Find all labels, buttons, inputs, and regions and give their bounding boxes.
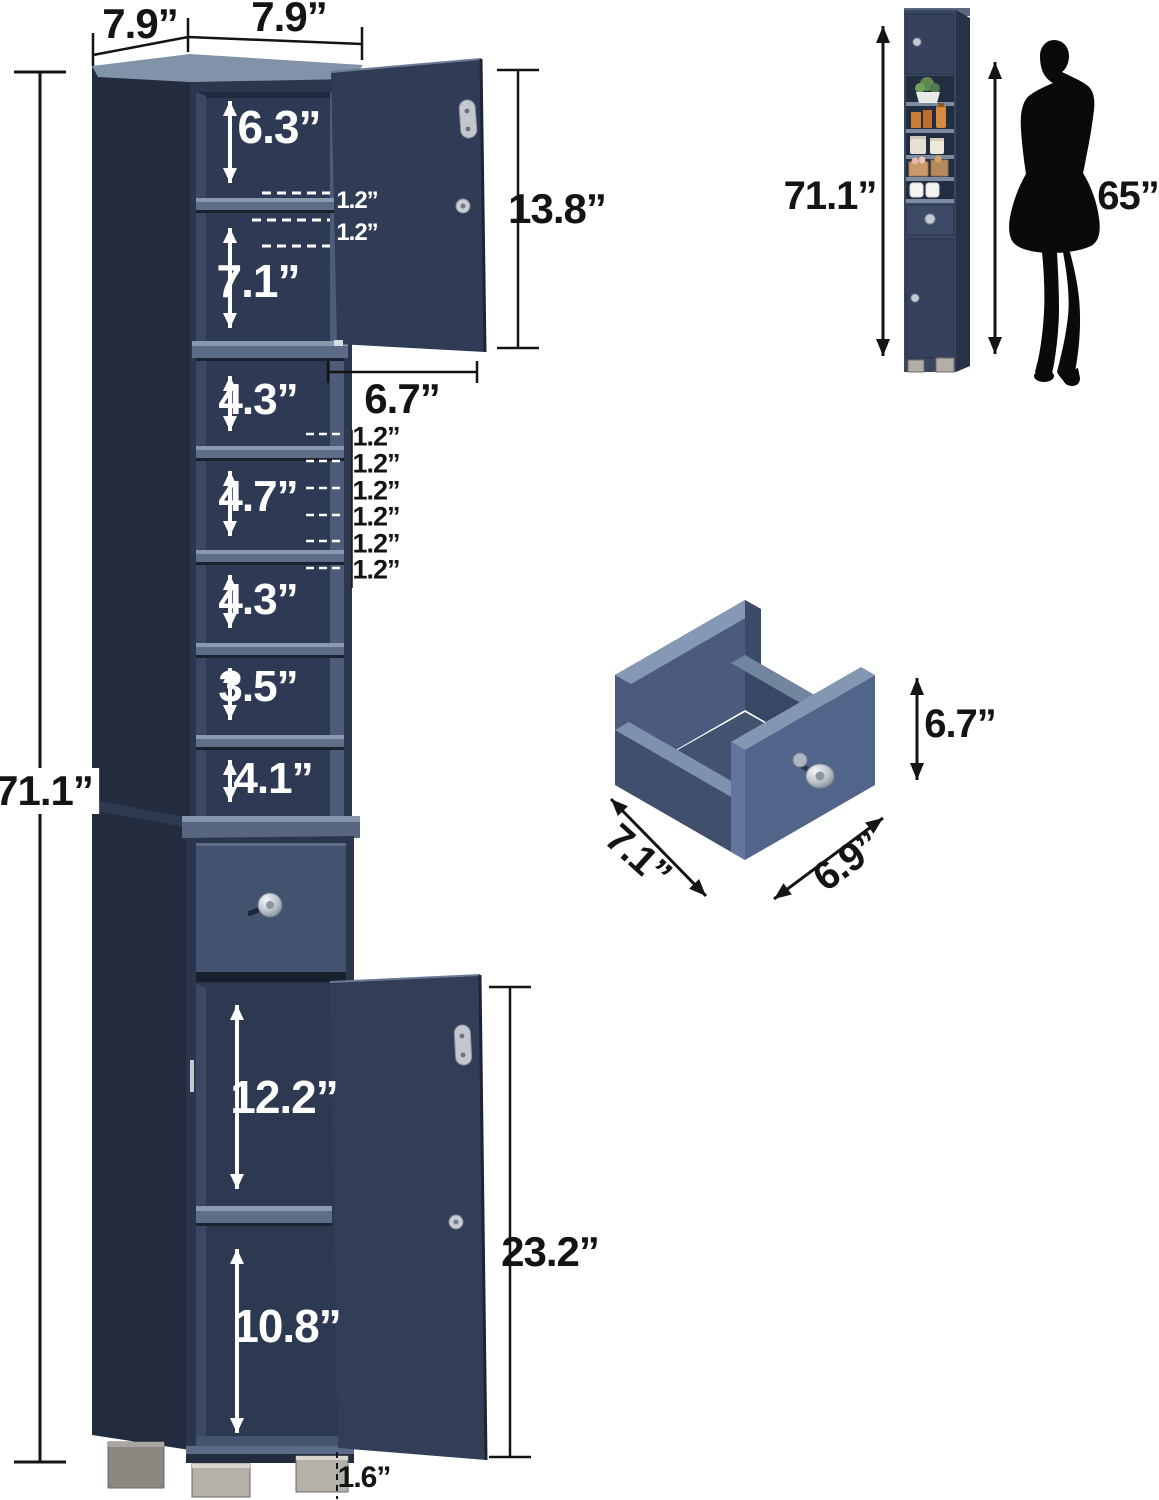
hinge-icon	[459, 99, 478, 138]
dim-side-pin-2-label: 1.2”	[352, 478, 399, 505]
mini-cabinet	[904, 8, 970, 372]
cabinet-scale-view	[883, 8, 1100, 386]
dim-top-door-height-label: 13.8”	[508, 188, 606, 230]
hinge-icon	[454, 1025, 472, 1066]
dim-shelf-gap-3-label: 4.7”	[218, 475, 297, 519]
product-dimension-diagram: 7.9” 7.9” 71.1” 6.3” 7.1” 4.3” 4.7” 4.3”…	[0, 0, 1159, 1500]
dim-shelf-gap-4-label: 4.3”	[218, 578, 297, 622]
cabinet-top-face	[92, 54, 363, 82]
dim-door-pin-0-label: 1.2”	[336, 189, 377, 213]
dim-side-pin-4-label: 1.2”	[352, 531, 399, 558]
dim-side-pin-3-label: 1.2”	[352, 504, 399, 531]
dim-side-pin-0-label: 1.2”	[352, 424, 399, 451]
dim-top-depth-label: 7.9”	[102, 3, 177, 45]
scale-person-height-label: 65”	[1097, 176, 1159, 216]
dim-shelf-gap-1-label: 7.1”	[217, 258, 300, 304]
dim-shelf-gap-6-label: 4.1”	[233, 757, 312, 801]
dim-door-pin-1-label: 1.2”	[336, 221, 377, 245]
dim-shelf-gap-0-label: 6.3”	[238, 104, 321, 150]
scale-cabinet-height-label: 71.1”	[784, 176, 877, 216]
drawer-height-label: 6.7”	[924, 704, 996, 744]
dim-side-pin-5-label: 1.2”	[352, 557, 399, 584]
dim-lower-open-bottom-label: 10.8”	[233, 1303, 341, 1349]
dim-foot-height-label: 1.6”	[338, 1463, 391, 1493]
person-silhouette	[1009, 40, 1100, 386]
dim-side-pin-1-label: 1.2”	[352, 451, 399, 478]
cabinet-drawer-front	[196, 843, 346, 982]
dim-top-door-width-label: 6.7”	[364, 378, 439, 420]
cabinet-side-panel	[92, 66, 190, 1450]
dim-shelf-gap-2-label: 4.3”	[218, 378, 297, 422]
dim-lower-open-top-label: 12.2”	[230, 1074, 338, 1120]
dim-total-height-label: 71.1”	[0, 768, 99, 814]
dim-lower-door-height-label: 23.2”	[501, 1231, 599, 1273]
dim-shelf-gap-5-label: 3.5”	[218, 665, 297, 709]
dim-top-width-label: 7.9”	[251, 0, 326, 38]
